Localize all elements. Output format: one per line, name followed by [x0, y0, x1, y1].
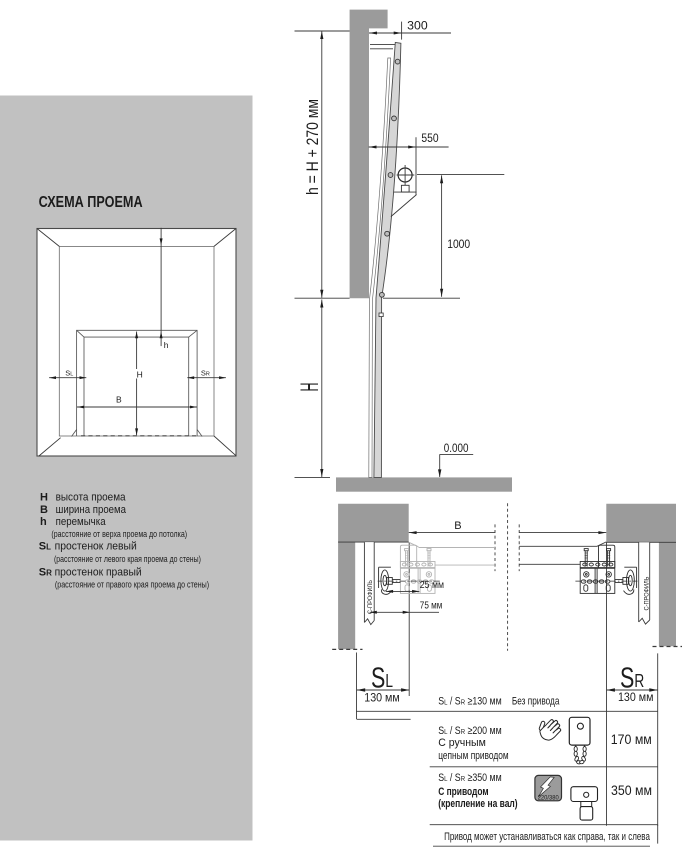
svg-text:простенок левый: простенок левый [55, 541, 137, 553]
svg-text:h: h [164, 340, 169, 350]
svg-text:0.000: 0.000 [444, 443, 469, 455]
svg-text:(расстояние от правого края пр: (расстояние от правого края проема до ст… [55, 580, 209, 590]
svg-text:B: B [40, 504, 48, 516]
svg-text:550: 550 [421, 131, 438, 145]
svg-text:(расстояние от левого края про: (расстояние от левого края проема до сте… [54, 554, 201, 564]
svg-text:высота проема: высота проема [56, 491, 127, 503]
svg-text:h: h [40, 516, 47, 528]
svg-text:SL / SR ≥200 мм: SL / SR ≥200 мм [438, 725, 502, 737]
svg-text:130 мм: 130 мм [364, 693, 400, 705]
svg-text:350 мм: 350 мм [611, 783, 652, 798]
svg-text:B: B [454, 520, 461, 532]
svg-text:С ручным: С ручным [438, 737, 486, 749]
svg-text:h = H + 270 мм: h = H + 270 мм [303, 99, 322, 195]
svg-text:170 мм: 170 мм [611, 732, 652, 747]
svg-text:300: 300 [407, 19, 428, 33]
svg-text:SR: SR [39, 566, 52, 578]
svg-text:130 мм: 130 мм [618, 692, 654, 704]
svg-text:С-ПРОФИЛЬ: С-ПРОФИЛЬ [367, 580, 374, 614]
svg-text:СХЕМА ПРОЕМА: СХЕМА ПРОЕМА [39, 194, 143, 211]
svg-text:перемычка: перемычка [56, 516, 107, 528]
svg-text:Привод может устанавливаться к: Привод может устанавливаться как справа,… [444, 831, 650, 843]
svg-text:H: H [296, 383, 324, 392]
svg-text:H: H [40, 491, 48, 503]
svg-text:SL: SL [371, 662, 393, 694]
svg-text:(расстояние от верха проема до: (расстояние от верха проема до потолка) [51, 529, 187, 539]
svg-text:H: H [137, 369, 143, 379]
svg-text:цепным приводом: цепным приводом [438, 750, 508, 762]
svg-text:С приводом: С приводом [438, 786, 488, 798]
svg-text:С-ПРОФИЛЬ: С-ПРОФИЛЬ [644, 576, 651, 610]
svg-text:220/380: 220/380 [538, 795, 559, 802]
svg-text:ширина проема: ширина проема [56, 504, 127, 516]
svg-text:B: B [116, 395, 122, 405]
svg-text:SR: SR [620, 662, 644, 694]
svg-text:1000: 1000 [447, 237, 470, 251]
svg-text:(крепление на вал): (крепление на вал) [438, 798, 518, 810]
svg-text:75 мм: 75 мм [420, 599, 443, 611]
svg-text:SL / SR ≥130 ммБез привода: SL / SR ≥130 ммБез привода [438, 695, 560, 707]
svg-text:простенок правый: простенок правый [55, 566, 142, 578]
svg-text:SL: SL [39, 541, 51, 553]
svg-text:SL / SR ≥350 мм: SL / SR ≥350 мм [438, 772, 502, 784]
svg-text:25 мм: 25 мм [420, 579, 444, 591]
